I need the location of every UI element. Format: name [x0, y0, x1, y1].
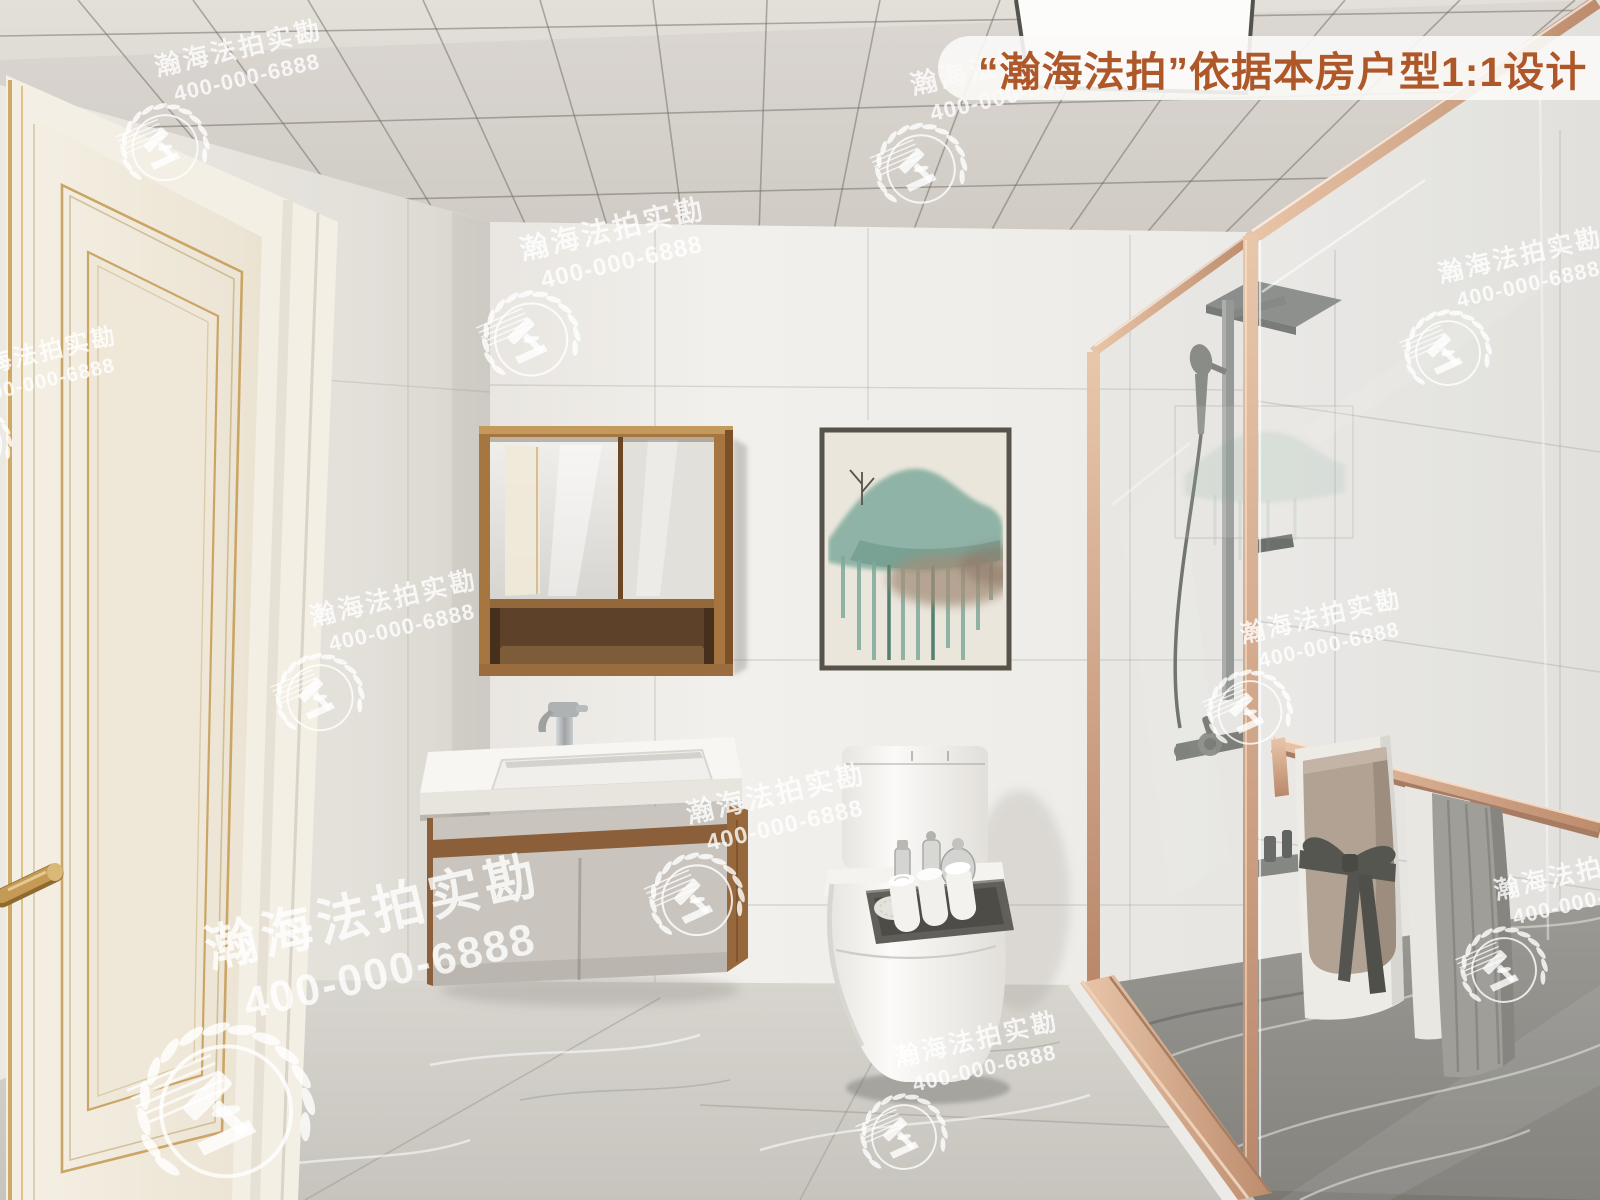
entry-door	[2, 75, 338, 1200]
scene-canvas	[0, 0, 1600, 1200]
wall-art	[822, 430, 1040, 706]
cabinet-shelf	[490, 608, 714, 664]
mirror-doors	[490, 437, 714, 599]
design-banner-text: “瀚海法拍”依据本房户型1:1设计	[978, 38, 1587, 98]
mirror-cabinet	[479, 426, 747, 676]
vanity-cabinet	[427, 803, 748, 986]
bathroom-render: 瀚海法拍实勘400-000-6888瀚海法拍实勘400-000-6888瀚海法拍…	[0, 0, 1600, 1200]
design-banner: “瀚海法拍”依据本房户型1:1设计	[938, 36, 1600, 100]
